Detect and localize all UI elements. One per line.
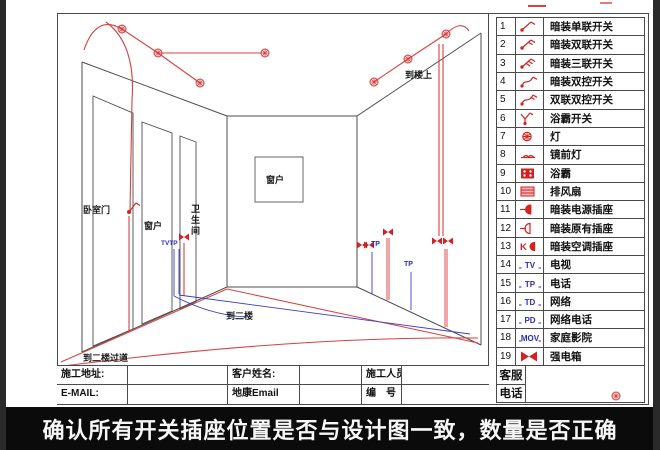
exhaust-fan-icon <box>516 183 544 200</box>
legend-item-label: 强电箱 <box>544 349 644 364</box>
customer-value-cell <box>300 366 362 385</box>
legend-item-label: 镜前灯 <box>544 147 644 162</box>
switch-two-way-icon <box>516 73 544 90</box>
label-bathroom: 卫生间 <box>190 204 200 250</box>
legend-item-label: 暗装单联开关 <box>544 19 644 34</box>
legend-item-label: 排风扇 <box>544 184 644 199</box>
ac-socket-icon: K <box>516 238 544 255</box>
text-symbol-icon: TV <box>516 256 544 273</box>
caption-bar: 确认所有开关插座位置是否与设计图一致，数量是否正确 <box>0 407 660 450</box>
staff-value-cell <box>402 366 489 385</box>
number-value-cell <box>402 385 489 404</box>
svg-text:K: K <box>520 242 527 253</box>
ceiling-lamp-icon <box>404 55 412 63</box>
email-label: E-MAIL: <box>57 385 128 404</box>
legend-item-number: 13 <box>497 238 516 255</box>
legend-item-label: 暗装电源插座 <box>544 202 644 217</box>
svg-text:PD: PD <box>524 316 535 325</box>
label-tp-outlet-1: TP <box>371 241 380 249</box>
legend-item-number: 11 <box>497 201 516 218</box>
ceiling-lamp-icon <box>118 25 126 33</box>
switch-double-icon <box>516 36 544 53</box>
legend-item-number: 3 <box>497 55 516 72</box>
legend-row: 11暗装电源插座 <box>497 201 644 219</box>
text-symbol-icon: PD <box>516 311 544 328</box>
ceiling-lamp-icon <box>442 30 450 38</box>
label-bedroom-door: 卧室门 <box>83 205 110 215</box>
ceiling-lamps <box>118 25 450 87</box>
legend-row: 14TV电视 <box>497 256 644 274</box>
label-back-window: 窗户 <box>266 175 284 185</box>
legend-row: 17PD网络电话 <box>497 311 644 329</box>
label-to-second-floor-corridor: 到二楼过道 <box>83 353 128 363</box>
label-left-window: 窗户 <box>144 221 162 231</box>
legend-item-number: 8 <box>497 146 516 163</box>
right-edge-strip <box>653 0 660 450</box>
switch-single-icon <box>516 18 544 35</box>
bath-heater-switch-icon <box>516 110 544 127</box>
legend-item-number: 17 <box>497 311 516 328</box>
customer-email-label: 地康Email <box>228 385 300 404</box>
legend-row: 16TD网络 <box>497 293 644 311</box>
small-lamp-icon <box>610 390 622 402</box>
legend-item-label: 浴霸 <box>544 166 644 181</box>
signal-wiring <box>174 249 470 334</box>
left-edge-strip <box>0 0 6 450</box>
legend-item-label: 电视 <box>544 257 644 272</box>
ceiling-lamp-icon <box>196 79 204 87</box>
legend-item-number: 18 <box>497 329 516 346</box>
legend-item-number: 16 <box>497 293 516 310</box>
legend-item-number: 2 <box>497 36 516 53</box>
switch-triple-icon <box>516 55 544 72</box>
bath-heater-icon <box>516 165 544 182</box>
legend-row: 7灯 <box>497 128 644 146</box>
wall-conduits <box>388 238 446 327</box>
legend-row: 12暗装原有插座 <box>497 219 644 237</box>
power-box-icon <box>516 348 544 365</box>
caption-text: 确认所有开关插座位置是否与设计图一致，数量是否正确 <box>42 413 617 445</box>
label-tvtp-outlet: TVTP <box>161 240 178 248</box>
electrical-plan-screenshot: 卧室门 窗户 卫生间 窗户 到楼上 到二楼 到二楼过道 TVTP TP TP 1… <box>0 0 660 450</box>
legend-row: 19强电箱 <box>497 348 644 365</box>
legend-footer: 客服 电话 <box>496 366 645 403</box>
legend-footer-labels: 客服 电话 <box>497 366 526 402</box>
lamp-icon <box>516 128 544 145</box>
legend-item-number: 9 <box>497 165 516 182</box>
customer-label: 客户姓名: <box>228 366 300 385</box>
legend-table: 1暗装单联开关2暗装双联开关3暗装三联开关4暗装双控开关5双联双控开关6浴霸开关… <box>496 17 645 366</box>
wall-socket-icon <box>179 234 189 241</box>
address-value-cell <box>128 366 228 385</box>
address-label: 施工地址: <box>57 366 128 385</box>
legend-item-number: 1 <box>497 18 516 35</box>
legend-item-label: 网络电话 <box>544 312 644 327</box>
text-symbol-icon: MOV <box>516 329 544 346</box>
title-block: 施工地址: 客户姓名: 施工人员 E-MAIL: 地康Email 编 号 <box>57 365 489 404</box>
number-label: 编 号 <box>362 385 402 404</box>
legend-item-number: 15 <box>497 274 516 291</box>
legend-row: 2暗装双联开关 <box>497 36 644 54</box>
legend-row: 6浴霸开关 <box>497 110 644 128</box>
existing-socket-icon <box>516 219 544 236</box>
staff-label: 施工人员 <box>362 366 402 385</box>
legend-footer-row2: 电话 <box>497 385 525 403</box>
legend-row: 4暗装双控开关 <box>497 73 644 91</box>
legend-row: 5双联双控开关 <box>497 91 644 109</box>
legend-row: 10排风扇 <box>497 183 644 201</box>
legend-row: 18MOV家庭影院 <box>497 329 644 347</box>
switch-double-two-way-icon <box>516 91 544 108</box>
label-tp-outlet-2: TP <box>404 261 413 269</box>
customer-email-value-cell <box>300 385 362 404</box>
legend-item-number: 10 <box>497 183 516 200</box>
legend-item-label: 暗装双控开关 <box>544 74 644 89</box>
legend-item-number: 12 <box>497 219 516 236</box>
wall-socket-icon <box>383 229 393 236</box>
legend-row: 3暗装三联开关 <box>497 55 644 73</box>
legend-item-label: 暗装双联开关 <box>544 37 644 52</box>
legend-footer-row1: 客服 <box>497 366 525 385</box>
legend-item-label: 网络 <box>544 294 644 309</box>
legend-item-label: 暗装原有插座 <box>544 221 644 236</box>
legend-item-number: 6 <box>497 110 516 127</box>
legend-row: 13K暗装空调插座 <box>497 238 644 256</box>
label-to-second-floor: 到二楼 <box>226 311 253 321</box>
mirror-lamp-icon <box>516 146 544 163</box>
power-socket-icon <box>516 201 544 218</box>
legend-footer-blank-cell <box>526 366 644 402</box>
legend-item-number: 14 <box>497 256 516 273</box>
legend-row: 9浴霸 <box>497 165 644 183</box>
legend-item-number: 7 <box>497 128 516 145</box>
ceiling-lamp-icon <box>154 49 162 57</box>
legend-item-label: 灯 <box>544 129 644 144</box>
wall-sockets <box>179 229 453 249</box>
text-symbol-icon: TP <box>516 274 544 291</box>
svg-text:TP: TP <box>524 280 535 289</box>
top-red-marks <box>528 3 612 6</box>
text-symbol-icon: TD <box>516 293 544 310</box>
legend-item-label: 家庭影院 <box>544 330 644 345</box>
legend-row: 1暗装单联开关 <box>497 18 644 36</box>
svg-text:TD: TD <box>524 298 535 307</box>
svg-text:MOV: MOV <box>520 334 539 343</box>
ceiling-lamp-icon <box>261 49 269 57</box>
legend-item-label: 暗装空调插座 <box>544 239 644 254</box>
legend-row: 15TP电话 <box>497 274 644 292</box>
legend-item-label: 浴霸开关 <box>544 111 644 126</box>
legend-item-number: 4 <box>497 73 516 90</box>
ceiling-lamp-icon <box>370 78 378 86</box>
legend-item-label: 暗装三联开关 <box>544 56 644 71</box>
label-to-upstairs: 到楼上 <box>405 70 432 80</box>
wall-switch-icon <box>127 203 140 214</box>
wall-socket-icon <box>432 238 442 245</box>
svg-text:TV: TV <box>524 261 535 270</box>
legend-row: 8镜前灯 <box>497 146 644 164</box>
legend-item-label: 双联双控开关 <box>544 92 644 107</box>
legend-item-number: 19 <box>497 348 516 365</box>
legend-item-number: 5 <box>497 91 516 108</box>
wall-socket-icon <box>443 238 453 245</box>
legend-item-label: 电话 <box>544 276 644 291</box>
email-value-cell <box>128 385 228 404</box>
